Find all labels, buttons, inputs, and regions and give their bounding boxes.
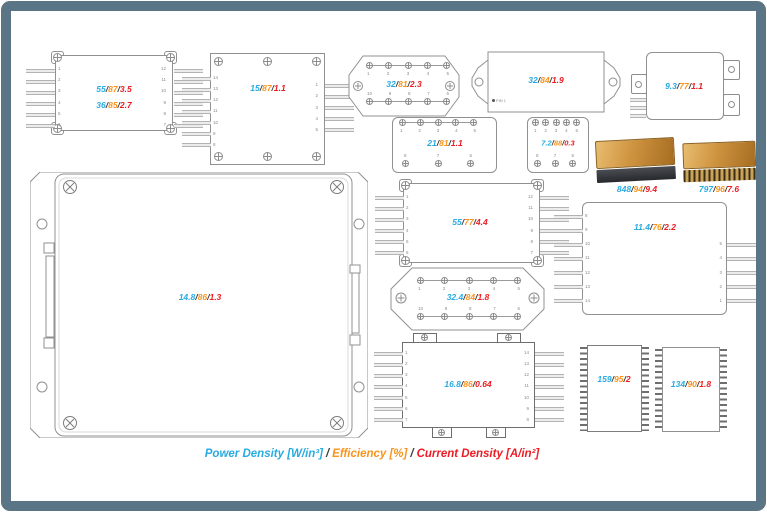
pin-number: 2 xyxy=(58,77,68,82)
pin-number: 2 xyxy=(443,286,446,291)
pin-icon xyxy=(435,119,442,126)
density-label: 848/94/9.4 xyxy=(617,184,657,194)
pin-number: 11 xyxy=(213,108,223,113)
pin-number: 12 xyxy=(524,372,529,377)
screw-icon xyxy=(166,53,175,62)
screw-icon xyxy=(533,181,542,190)
mounting-hole-icon xyxy=(728,101,735,108)
screw-icon xyxy=(438,429,445,436)
density-label: 32.4/84/1.8 xyxy=(447,292,490,302)
pin-numbers-right: 141312111098 xyxy=(519,350,529,422)
pin-number: 4 xyxy=(455,128,458,133)
pin-icon xyxy=(441,277,448,284)
pin-icon xyxy=(542,119,549,126)
pin-number: 10 xyxy=(213,120,223,125)
pin-row-top xyxy=(532,119,580,126)
density-label: 21/81/1.1 xyxy=(427,138,463,148)
pin-number: 3 xyxy=(315,105,318,110)
density-label: 32/84/1.9 xyxy=(528,75,564,85)
pin-number: 3 xyxy=(407,71,410,76)
pin-icon xyxy=(385,98,392,105)
pin-number: 8 xyxy=(163,111,166,116)
module-h-photo xyxy=(595,137,676,185)
screw-icon xyxy=(214,152,223,161)
pin-number: 12 xyxy=(213,97,223,102)
pin-numbers-top: 12345 xyxy=(367,71,449,76)
current-value: 2.3 xyxy=(410,79,422,89)
pin-number: 11 xyxy=(524,383,529,388)
module-p-body xyxy=(662,347,720,432)
pin-numbers-left: 123456 xyxy=(58,66,68,127)
pin-number: 1 xyxy=(406,194,416,199)
pin-icon xyxy=(424,98,431,105)
pin-number: 13 xyxy=(585,284,595,289)
diagram-canvas: 123456 121110987 55/87/3.5 36/85/2.7 141… xyxy=(0,0,767,512)
pin-numbers-top: 12345 xyxy=(400,128,476,133)
pin-number: 7 xyxy=(493,306,496,311)
density-label: 55/87/3.5 xyxy=(96,84,132,94)
current-value: 4.4 xyxy=(476,217,488,227)
pin-icon xyxy=(417,119,424,126)
efficiency-value: 84 xyxy=(540,75,549,85)
pin-number: 6 xyxy=(517,306,520,311)
pin-number: 9 xyxy=(526,406,529,411)
pin-number: 1 xyxy=(719,298,722,303)
pin-numbers-right: 121110987 xyxy=(523,194,533,255)
pin-icon xyxy=(466,277,473,284)
pin-icon xyxy=(452,119,459,126)
module-o-body xyxy=(587,345,642,432)
pin-number: 6 xyxy=(469,153,472,158)
pin-number: 7 xyxy=(554,153,557,158)
pin-number: 10 xyxy=(161,88,166,93)
pin-number: 10 xyxy=(418,306,423,311)
power-value: 14.8 xyxy=(179,292,196,302)
pin-number: 3 xyxy=(555,128,558,133)
current-value: 7.6 xyxy=(727,184,739,194)
photo-pin-row xyxy=(683,167,756,182)
pin-number: 4 xyxy=(58,100,68,105)
pin-number: 11 xyxy=(585,255,595,260)
module-i-photo xyxy=(682,141,756,184)
current-value: 1.8 xyxy=(699,379,711,389)
lead-pins-left xyxy=(182,77,211,147)
current-value: 2.7 xyxy=(120,100,132,110)
power-value: 797 xyxy=(699,184,713,194)
density-label: 15/87/1.1 xyxy=(250,83,286,93)
pin-icon xyxy=(399,119,406,126)
screw-icon xyxy=(533,256,542,265)
current-value: 9.4 xyxy=(645,184,657,194)
pin1-dot-icon xyxy=(492,99,495,102)
pin-number: 9 xyxy=(163,100,166,105)
pin-number: 9 xyxy=(389,91,392,96)
pin-number: 2 xyxy=(544,128,547,133)
pin-number: 13 xyxy=(213,86,223,91)
pin-icon xyxy=(435,160,442,167)
pin-number: 8 xyxy=(213,142,223,147)
pin-icon xyxy=(563,119,570,126)
legend-power-density: Power Density [W/in³] xyxy=(205,448,323,460)
pin-icon xyxy=(417,277,424,284)
pin-icon xyxy=(443,62,450,69)
pin-icon xyxy=(534,160,541,167)
pin-teeth-right xyxy=(642,347,649,431)
pin-numbers-bottom: 876 xyxy=(404,153,472,158)
pin1-label: PIN 1 xyxy=(496,98,506,103)
pin-numbers-bottom: 876 xyxy=(536,153,574,158)
pin-icon xyxy=(405,62,412,69)
density-label: 55/77/4.4 xyxy=(452,217,488,227)
current-value: 1.9 xyxy=(552,75,564,85)
pin-numbers-right: 12345 xyxy=(308,82,318,132)
current-value: 0.3 xyxy=(564,139,574,148)
pin-number: 6 xyxy=(405,406,415,411)
current-value: 2.2 xyxy=(664,222,676,232)
pin-icon xyxy=(552,160,559,167)
pin-number: 13 xyxy=(524,361,529,366)
pin-number: 1 xyxy=(534,128,537,133)
lead-pins-left xyxy=(375,196,404,255)
power-value: 16.8 xyxy=(444,379,461,389)
pin-icon xyxy=(490,313,497,320)
pin-number: 7 xyxy=(530,250,533,255)
density-label: 134/90/1.8 xyxy=(671,379,711,389)
photo-top-face xyxy=(595,137,675,169)
screw-icon xyxy=(214,57,223,66)
pin-number: 1 xyxy=(400,128,403,133)
pin-number: 5 xyxy=(406,239,416,244)
pin-teeth-left xyxy=(580,347,587,431)
lead-pins-left xyxy=(374,352,403,422)
pin-number: 5 xyxy=(405,395,415,400)
efficiency-value: 77 xyxy=(464,217,473,227)
module-j-large-outline xyxy=(30,172,368,438)
pin-numbers-left: 1234567 xyxy=(405,350,415,422)
pin-number: 4 xyxy=(315,116,318,121)
power-value: 11.4 xyxy=(634,222,650,232)
screw-icon xyxy=(263,57,272,66)
lead-pins-left xyxy=(26,69,55,128)
mounting-hole-icon xyxy=(635,81,642,88)
density-label: 14.8/86/1.3 xyxy=(179,292,222,302)
pin-number: 2 xyxy=(719,284,722,289)
screw-icon xyxy=(312,152,321,161)
power-value: 134 xyxy=(671,379,685,389)
efficiency-value: 87 xyxy=(108,84,117,94)
pin1-marker: PIN 1 xyxy=(492,98,506,103)
pin-icon xyxy=(490,277,497,284)
pin-number: 9 xyxy=(530,228,533,233)
pin-icon xyxy=(405,98,412,105)
pin-number: 5 xyxy=(575,128,578,133)
pin-number: 7 xyxy=(427,91,430,96)
power-value: 7.2 xyxy=(541,139,551,148)
screw-icon xyxy=(492,429,499,436)
pin-icon xyxy=(470,119,477,126)
pin-icon xyxy=(514,277,521,284)
pin-number: 3 xyxy=(437,128,440,133)
legend-slash: / xyxy=(410,448,413,460)
efficiency-value: 88 xyxy=(554,139,562,148)
pin-row-top xyxy=(366,62,450,69)
pin-number: 10 xyxy=(524,395,529,400)
efficiency-value: 84 xyxy=(466,292,475,302)
pin-number: 10 xyxy=(367,91,372,96)
pin-icon xyxy=(402,160,409,167)
pin-number: 8 xyxy=(404,153,407,158)
pin-number: 9 xyxy=(213,131,223,136)
photo-top-face xyxy=(682,141,756,169)
pin-teeth-left xyxy=(655,349,662,431)
screw-icon xyxy=(312,57,321,66)
pin-number: 1 xyxy=(315,82,318,87)
pin-numbers-left: 891011121314 xyxy=(585,213,595,303)
pin-number: 8 xyxy=(469,306,472,311)
pin-teeth-right xyxy=(720,349,727,431)
pin-number: 2 xyxy=(406,205,416,210)
pin-number: 9 xyxy=(585,227,595,232)
pin-number: 6 xyxy=(58,122,68,127)
screw-icon xyxy=(401,256,410,265)
efficiency-value: 81 xyxy=(398,79,407,89)
pin-number: 10 xyxy=(528,216,533,221)
pin-number: 4 xyxy=(493,286,496,291)
pin-number: 1 xyxy=(418,286,421,291)
pin-number: 12 xyxy=(528,194,533,199)
current-value: 1.1 xyxy=(691,81,703,91)
screw-icon xyxy=(263,152,272,161)
efficiency-value: 94 xyxy=(633,184,642,194)
pin-icon xyxy=(532,119,539,126)
lead-pins-right xyxy=(727,243,756,303)
density-label: 9.3/77/1.1 xyxy=(665,81,703,91)
pin-row-bottom xyxy=(402,160,474,167)
density-label: 32/81/2.3 xyxy=(386,79,422,89)
pin-row-top xyxy=(399,119,477,126)
mounting-hole-icon xyxy=(728,66,735,73)
density-label: 797/96/7.6 xyxy=(699,184,739,194)
screw-icon xyxy=(53,53,62,62)
power-value: 32.4 xyxy=(447,292,464,302)
density-label: 16.8/86/0.64 xyxy=(444,379,491,389)
pin-icon xyxy=(441,313,448,320)
pin-row-bottom xyxy=(417,313,521,320)
pin-number: 3 xyxy=(58,88,68,93)
pin-icon xyxy=(417,313,424,320)
pin-number: 2 xyxy=(405,361,415,366)
pin-icon xyxy=(467,160,474,167)
power-value: 159 xyxy=(597,374,611,384)
pin-number: 2 xyxy=(315,93,318,98)
current-value: 1.1 xyxy=(274,83,286,93)
efficiency-value: 95 xyxy=(614,374,623,384)
pin-number: 5 xyxy=(473,128,476,133)
pin-numbers-left: 123456 xyxy=(406,194,416,255)
density-label: 159/95/2 xyxy=(597,374,630,384)
module-m-body xyxy=(582,202,727,315)
pin-number: 1 xyxy=(58,66,68,71)
pin-numbers-right: 54321 xyxy=(712,241,722,303)
pin-numbers-right: 121110987 xyxy=(156,66,166,127)
power-value: 848 xyxy=(617,184,631,194)
efficiency-value: 77 xyxy=(679,81,688,91)
pin-row-bottom xyxy=(366,98,450,105)
pin-number: 11 xyxy=(161,77,166,82)
photo-base xyxy=(596,166,676,183)
pin-number: 7 xyxy=(163,122,166,127)
pin-number: 8 xyxy=(408,91,411,96)
pin-number: 8 xyxy=(530,239,533,244)
pin-numbers-top: 12345 xyxy=(534,128,578,133)
pin-number: 4 xyxy=(719,255,722,260)
pin-icon xyxy=(385,62,392,69)
pin-icon xyxy=(366,98,373,105)
pin-number: 5 xyxy=(315,127,318,132)
current-value: 1.3 xyxy=(209,292,221,302)
pin-icon xyxy=(573,119,580,126)
pin-number: 5 xyxy=(719,241,722,246)
pin-number: 7 xyxy=(405,417,415,422)
pin-number: 8 xyxy=(585,213,595,218)
pin-number: 7 xyxy=(437,153,440,158)
pin-icon xyxy=(443,98,450,105)
pin-number: 11 xyxy=(528,205,533,210)
pin-number: 6 xyxy=(446,91,449,96)
lead-pins-right xyxy=(535,352,564,422)
pin-icon xyxy=(424,62,431,69)
pin-number: 4 xyxy=(405,383,415,388)
pin-icon xyxy=(514,313,521,320)
pin-number: 1 xyxy=(405,350,415,355)
pin-number: 3 xyxy=(719,270,722,275)
pin-number: 8 xyxy=(536,153,539,158)
pin-icon xyxy=(366,62,373,69)
current-value: 1.1 xyxy=(451,138,463,148)
pin-icon xyxy=(569,160,576,167)
pin-number: 5 xyxy=(58,111,68,116)
pin-number: 4 xyxy=(427,71,430,76)
pin-number: 2 xyxy=(418,128,421,133)
pin-number: 12 xyxy=(585,270,595,275)
legend-current-density: Current Density [A/in²] xyxy=(417,448,540,460)
efficiency-value: 85 xyxy=(108,100,117,110)
pin-number: 10 xyxy=(585,241,595,246)
pin-number: 12 xyxy=(161,66,166,71)
lead-pins-left xyxy=(554,215,583,303)
pin-numbers-top: 12345 xyxy=(418,286,520,291)
pin-number: 14 xyxy=(213,75,223,80)
efficiency-value: 86 xyxy=(198,292,207,302)
efficiency-value: 86 xyxy=(463,379,472,389)
pin-numbers-left: 141312111098 xyxy=(213,75,223,147)
pin-number: 3 xyxy=(405,372,415,377)
pin-number: 3 xyxy=(406,216,416,221)
efficiency-value: 81 xyxy=(439,138,448,148)
screw-icon xyxy=(505,334,512,341)
pin-number: 5 xyxy=(446,71,449,76)
efficiency-value: 90 xyxy=(687,379,696,389)
pin-number: 6 xyxy=(571,153,574,158)
legend: Power Density [W/in³]/Efficiency [%]/Cur… xyxy=(205,448,539,460)
power-value: 9.3 xyxy=(665,81,677,91)
pin-number: 2 xyxy=(387,71,390,76)
density-label: 7.2/88/0.3 xyxy=(541,139,574,148)
pin-icon xyxy=(553,119,560,126)
pin-number: 9 xyxy=(445,306,448,311)
efficiency-value: 76 xyxy=(652,222,661,232)
pin-number: 4 xyxy=(565,128,568,133)
pin-number: 3 xyxy=(468,286,471,291)
pin-numbers-bottom: 109876 xyxy=(418,306,520,311)
current-value: 2 xyxy=(626,374,631,384)
pin-number: 14 xyxy=(524,350,529,355)
legend-slash: / xyxy=(326,448,329,460)
pin-number: 1 xyxy=(367,71,370,76)
pin-number: 5 xyxy=(517,286,520,291)
screw-icon xyxy=(401,181,410,190)
lead-pins-left xyxy=(630,98,646,118)
density-label: 36/85/2.7 xyxy=(96,100,132,110)
pin-number: 14 xyxy=(585,298,595,303)
current-value: 1.8 xyxy=(477,292,489,302)
screw-icon xyxy=(421,334,428,341)
current-value: 0.64 xyxy=(475,379,492,389)
pin-row-top xyxy=(417,277,521,284)
current-value: 3.5 xyxy=(120,84,132,94)
pin-number: 6 xyxy=(406,250,416,255)
pin-icon xyxy=(466,313,473,320)
efficiency-value: 87 xyxy=(262,83,271,93)
pin-number: 8 xyxy=(526,417,529,422)
efficiency-value: 96 xyxy=(715,184,724,194)
density-label: 11.4/76/2.2 xyxy=(634,222,676,232)
pin-number: 4 xyxy=(406,228,416,233)
pin-numbers-bottom: 109876 xyxy=(367,91,449,96)
legend-efficiency: Efficiency [%] xyxy=(332,448,407,460)
pin-row-bottom xyxy=(534,160,576,167)
